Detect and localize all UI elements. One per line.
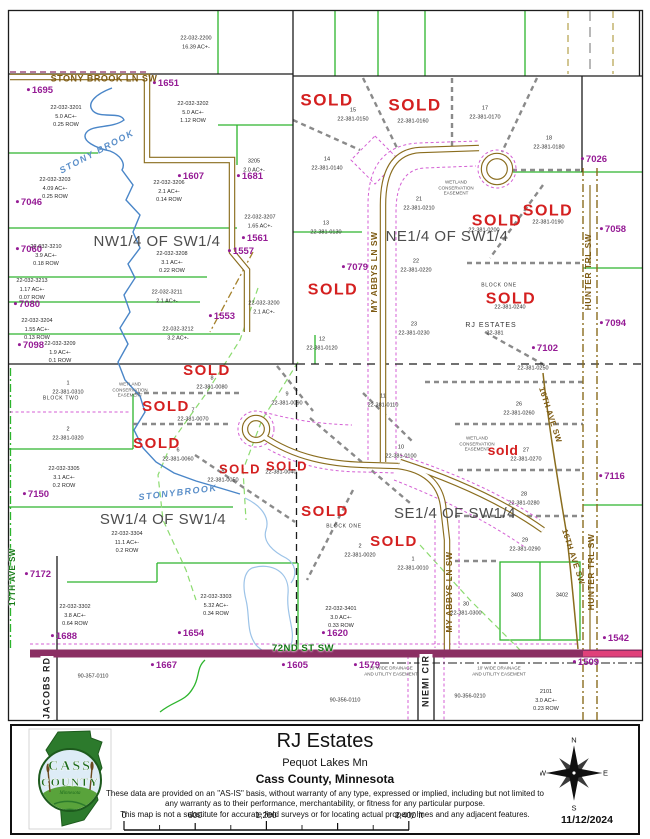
- sold-label: SOLD: [370, 531, 418, 553]
- parcel-id-label: 3205 2.0 AC+-: [243, 157, 265, 174]
- sold-label: SOLD: [523, 199, 573, 222]
- parcel-id-label: 3403: [511, 592, 523, 601]
- map-legend-footer: CASS COUNTY Minnesota RJ Estates Pequot …: [10, 724, 640, 835]
- address-label: 7116: [599, 470, 625, 484]
- parcel-id-label: 23 22-381-0230: [398, 320, 429, 337]
- address-label: 7058: [600, 223, 626, 237]
- address-label: 1561: [242, 232, 268, 246]
- address-label: 7172: [25, 568, 51, 582]
- road-label: HUNTER TRL SW: [585, 534, 597, 611]
- easement-note: 10' WIDE DRAINAGE AND UTILITY EASEMENT: [472, 665, 525, 676]
- parcel-id-label: 30 22-381-0300: [450, 600, 481, 617]
- parcel-id-label: 22-032-3209 1.9 AC+- 0.1 ROW: [44, 340, 75, 366]
- parcel-id-label: 22-032-3207 1.65 AC+-: [244, 213, 275, 230]
- block-label: BLOCK ONE: [326, 523, 361, 530]
- parcel-id-label: 27 22-381-0270: [510, 446, 541, 463]
- parcel-id-label: 12 22-381-0120: [306, 335, 337, 352]
- quarter-section-label: NW1/4 OF SW1/4: [93, 231, 220, 253]
- compass-rose: N W E S: [540, 734, 608, 812]
- address-label: 7094: [600, 317, 626, 331]
- parcel-id-label: 2 22-381-0020: [344, 542, 375, 559]
- sold-label: SOLD: [219, 461, 261, 480]
- block-label: BLOCK TWO: [43, 395, 79, 402]
- sold-label: SOLD: [133, 433, 181, 455]
- sold-label: SOLD: [266, 458, 308, 477]
- compass-s: S: [571, 804, 576, 813]
- compass-n: N: [571, 735, 576, 744]
- parcel-id-label: 6 22-381-0060: [162, 446, 193, 463]
- parcel-id-label: 22-032-3208 3.1 AC+- 0.22 ROW: [156, 250, 187, 276]
- easement-note: 10' WIDE DRAINAGE AND UTILITY EASEMENT: [364, 665, 417, 676]
- scale-bar: [120, 819, 420, 833]
- easement-note: WETLAND CONSERVATION EASEMENT: [459, 436, 494, 453]
- parcel-id-label: 22-032-3305 3.1 AC+- 0.2 ROW: [48, 465, 79, 491]
- parcel-id-label: 22-032-3202 5.0 AC+- 1.12 ROW: [177, 100, 208, 126]
- plat-map[interactable]: NW1/4 OF SW1/4NE1/4 OF SW1/4SW1/4 OF SW1…: [0, 0, 650, 724]
- parcel-id-label: 22 22-381-0220: [400, 257, 431, 274]
- address-label: 7060: [16, 243, 42, 257]
- plat-map-page: NW1/4 OF SW1/4NE1/4 OF SW1/4SW1/4 OF SW1…: [0, 0, 650, 839]
- parcel-id-label: 21 22-381-0210: [403, 195, 434, 212]
- quarter-section-label: SW1/4 OF SW1/4: [100, 509, 226, 531]
- road-label: JACOBS RD: [40, 656, 53, 720]
- quarter-section-label: SE1/4 OF SW1/4: [394, 503, 516, 525]
- address-label: 7150: [23, 488, 49, 502]
- parcel-id-label: 5 22-381-0050: [207, 467, 238, 484]
- block-label: BLOCK ONE: [481, 282, 516, 289]
- sold-label: SOLD: [301, 501, 349, 523]
- map-labels: NW1/4 OF SW1/4NE1/4 OF SW1/4SW1/4 OF SW1…: [0, 0, 650, 724]
- parcel-id-label: 14 22-381-0140: [311, 155, 342, 172]
- parcel-id-label: 1 22-381-0310: [52, 379, 83, 396]
- sold-label: sold: [488, 440, 519, 460]
- road-label: 16TH AVE SW: [559, 528, 588, 587]
- parcel-id-label: 17 22-381-0170: [469, 104, 500, 121]
- sold-label: SOLD: [300, 89, 353, 114]
- address-label: 1654: [178, 627, 204, 641]
- address-label: 7102: [532, 342, 558, 356]
- parcel-id-label: 1 22-381-0010: [397, 555, 428, 572]
- address-label: 1695: [27, 84, 53, 98]
- parcel-id-label: 22-032-3211 2.1 AC+-: [152, 288, 183, 305]
- address-label: 1688: [51, 630, 77, 644]
- sold-label: SOLD: [388, 94, 441, 119]
- stream-label: STONY BROOK: [57, 127, 137, 178]
- parcel-id-label: 22-032-3302 3.8 AC+- 0.64 ROW: [59, 603, 90, 629]
- parcel-id-label: 90-357-0110: [78, 673, 109, 682]
- sold-label: SOLD: [183, 360, 231, 382]
- address-label: 1509: [573, 656, 599, 670]
- compass-e: E: [603, 768, 608, 777]
- parcel-id-label: 2101 3.0 AC+- 0.23 ROW: [533, 688, 559, 714]
- road-label: MY ABBYS LN SW: [443, 551, 455, 632]
- map-date: 11/12/2024: [532, 814, 642, 826]
- address-label: 1620: [322, 627, 348, 641]
- address-label: 1681: [237, 170, 263, 184]
- parcel-id-label: 22-381-0160: [397, 118, 428, 127]
- parcel-id-label: 7 22-381-0070: [177, 406, 208, 423]
- parcel-id-label: 22-032-3210 3.9 AC+- 0.18 ROW: [30, 243, 61, 269]
- parcel-id-label: 10 22-381-0100: [385, 443, 416, 460]
- parcel-id-label: 22-032-3204 1.55 AC+- 0.13 ROW: [21, 317, 52, 343]
- parcel-id-label: 28 22-381-0280: [508, 490, 539, 507]
- cass-county-logo: CASS COUNTY Minnesota: [28, 728, 112, 830]
- parcel-id-label: 22-381-0040: [265, 469, 296, 478]
- plat-name-label: RJ ESTATES: [465, 321, 516, 331]
- parcel-id-label: 90-356-0110: [330, 697, 361, 706]
- road-label: MY ABBYS LN SW: [368, 231, 380, 312]
- parcel-id-label: 22-381-0200: [468, 227, 499, 236]
- road-label: HUNTER TRL SW: [582, 234, 594, 311]
- parcel-id-label: 11 22-381-0110: [368, 392, 399, 409]
- parcel-id-label: 22-381-0240: [494, 304, 525, 313]
- road-label: 17TH AVE SW: [7, 548, 19, 606]
- address-label: 1651: [153, 77, 179, 91]
- road-label: NIEMI CIR: [419, 654, 432, 708]
- parcel-id-label: 18 22-381-0180: [533, 134, 564, 151]
- address-label: 1667: [151, 659, 177, 673]
- stream-label: STONYBROOK: [138, 482, 218, 505]
- parcel-id-label: 22-381-0190: [532, 219, 563, 228]
- address-label: 7080: [14, 298, 40, 312]
- address-label: 7026: [581, 153, 607, 167]
- compass-w: W: [540, 768, 547, 777]
- address-label: 1553: [209, 310, 235, 324]
- address-label: 7079: [342, 261, 368, 275]
- sold-label: SOLD: [472, 209, 522, 232]
- address-label: 7046: [16, 196, 42, 210]
- map-disclaimer: These data are provided on an "AS-IS" ba…: [104, 789, 546, 820]
- parcel-id-label: 22-032-3201 5.0 AC+- 0.25 ROW: [50, 104, 81, 130]
- road-label: STONY BROOK LN SW: [51, 72, 158, 85]
- road-label: 72ND ST SW: [272, 642, 334, 656]
- address-label: 1579: [354, 659, 380, 673]
- parcel-id-label: 8 22-381-0080: [196, 374, 227, 391]
- map-title: RJ Estates: [132, 730, 518, 753]
- easement-note: WETLAND CONSERVATION EASEMENT: [112, 382, 147, 399]
- sold-label: SOLD: [486, 287, 536, 310]
- parcel-id-label: 3402: [556, 592, 568, 601]
- parcel-id-label: 22-032-2200 16.39 AC+-: [180, 34, 211, 51]
- parcel-id-label: 22-032-3213 1.17 AC+- 0.07 ROW: [16, 277, 47, 303]
- map-county: Cass County, Minnesota: [132, 772, 518, 786]
- parcel-id-label: 22-032-3303 5.32 AC+- 0.34 ROW: [200, 593, 231, 619]
- parcel-id-label: 2 22-381-0320: [52, 425, 83, 442]
- parcel-id-label: 22-032-3200 2.1 AC+-: [248, 299, 279, 316]
- parcel-id-label: 22-032-3206 2.1 AC+- 0.14 ROW: [153, 179, 184, 205]
- address-label: 1605: [282, 659, 308, 673]
- parcel-id-label: 15 22-381-0150: [337, 106, 368, 123]
- road-label: 16TH AVE SW: [536, 386, 565, 445]
- parcel-id-label: 22-032-3304 11.1 AC+- 0.2 ROW: [111, 530, 142, 556]
- address-label: 7098: [18, 339, 44, 353]
- parcel-id-label: 13 22-381-0130: [310, 219, 341, 236]
- parcel-id-label: 29 22-381-0290: [509, 536, 540, 553]
- parcel-id-label: 22-032-3401 3.0 AC+- 0.33 ROW: [325, 605, 356, 631]
- sold-label: SOLD: [308, 278, 358, 301]
- parcel-id-label: 22-381: [486, 330, 503, 339]
- parcel-id-label: 22-381-0250: [517, 365, 548, 374]
- address-label: 1557: [228, 245, 254, 259]
- parcel-id-label: 90-356-0210: [454, 693, 485, 702]
- logo-text-minnesota: Minnesota: [58, 791, 81, 796]
- parcel-id-label: 22-032-3212 3.2 AC+-: [162, 325, 193, 342]
- logo-text-county: COUNTY: [41, 775, 99, 789]
- address-label: 1542: [603, 632, 629, 646]
- parcel-id-label: 9 22-381-0090: [271, 390, 302, 407]
- parcel-id-label: 26 22-381-0260: [503, 400, 534, 417]
- logo-text-cass: CASS: [48, 759, 92, 774]
- sold-label: SOLD: [142, 396, 190, 418]
- easement-note: WETLAND CONSERVATION EASEMENT: [438, 180, 473, 197]
- map-subtitle: Pequot Lakes Mn: [132, 757, 518, 769]
- parcel-id-label: 22-032-3203 4.09 AC+- 0.25 ROW: [39, 176, 70, 202]
- quarter-section-label: NE1/4 OF SW1/4: [386, 226, 509, 248]
- address-label: 1607: [178, 170, 204, 184]
